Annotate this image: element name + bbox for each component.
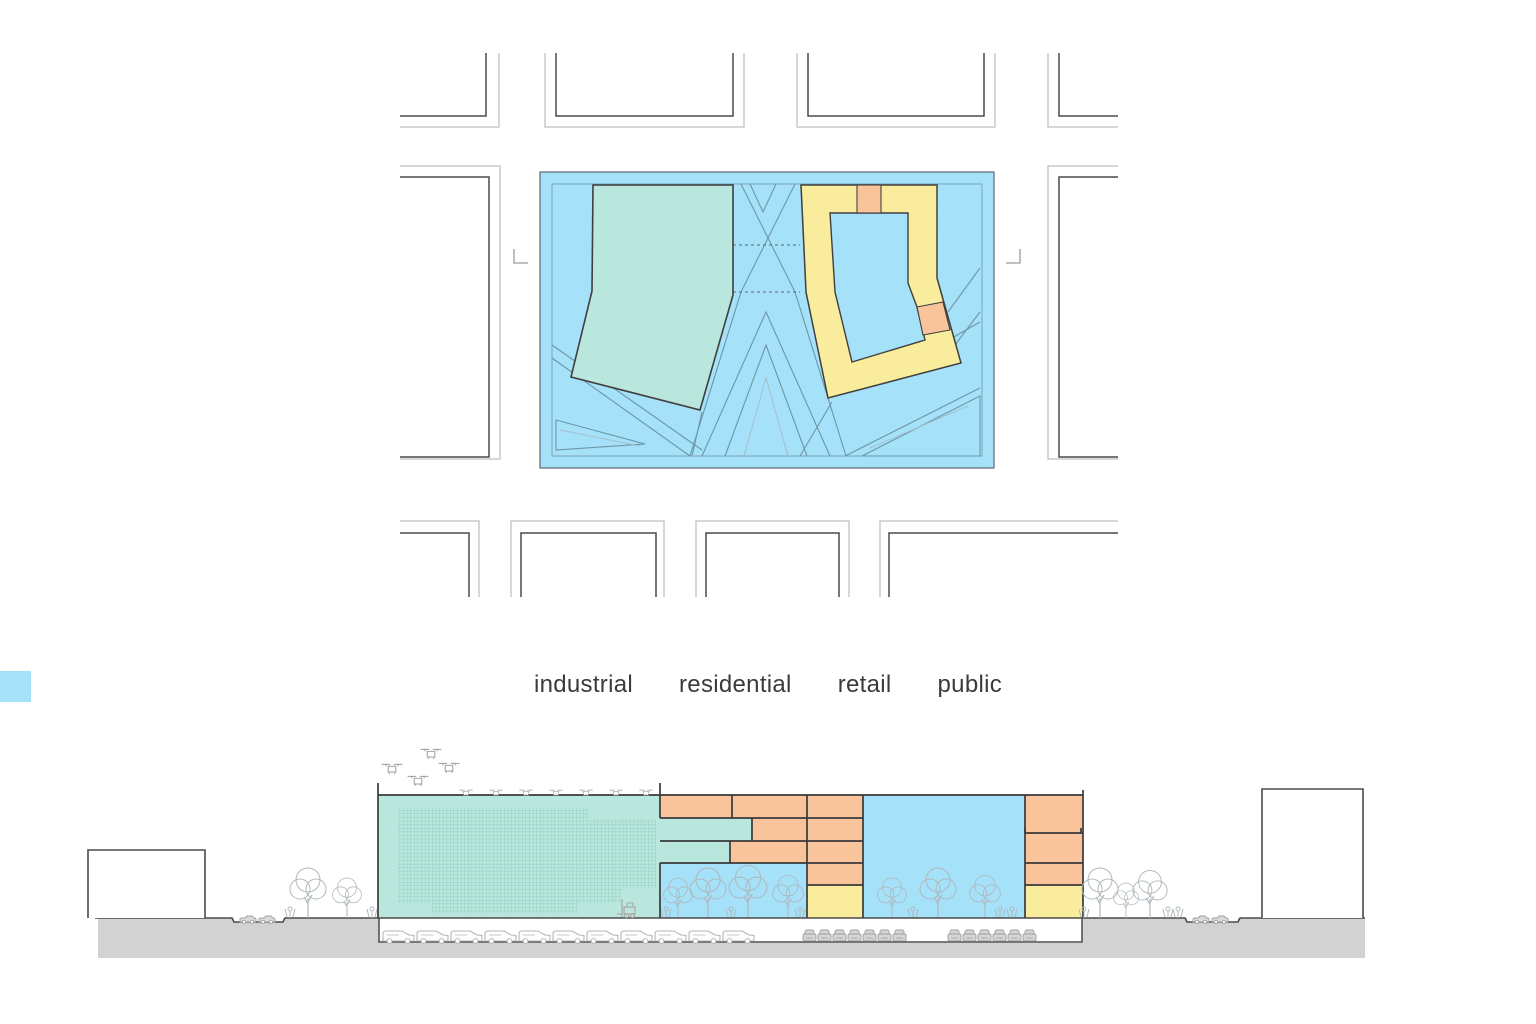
sprout-icon [285, 907, 295, 918]
industrial-finger-1 [660, 818, 752, 841]
car-icon [1008, 930, 1021, 941]
car-icon [948, 930, 961, 941]
drone-icon [382, 764, 403, 774]
retail-unit-left [807, 885, 863, 918]
sprout-icon [367, 907, 377, 918]
car-icon [803, 930, 816, 941]
car-icon [1023, 930, 1036, 941]
legend-item-residential: residential [679, 671, 792, 699]
residential-tower-top [1025, 795, 1083, 833]
legend-item-public: public [938, 671, 1003, 699]
diagram-svg [0, 0, 1536, 1024]
section-drawing [88, 749, 1365, 958]
industrial-building-plan [571, 185, 733, 410]
tree-icon [1113, 883, 1138, 918]
car-icon [863, 930, 876, 941]
urban-design-diagram: industrial residential retail public [0, 0, 1536, 1024]
legend-label-retail: retail [838, 671, 892, 699]
industrial-rack-grid [398, 808, 656, 914]
legend-item-retail: retail [838, 671, 892, 699]
legend: industrial residential retail public [0, 671, 1536, 699]
public-ground-floor [660, 863, 807, 918]
legend-label-industrial: industrial [534, 671, 633, 699]
car-icon [833, 930, 846, 941]
residential-tower-mid [1025, 833, 1083, 863]
legend-label-residential: residential [679, 671, 792, 699]
car-icon [993, 930, 1006, 941]
residential-bar-3 [730, 841, 863, 863]
industrial-finger-2 [660, 841, 730, 863]
retail-unit-right [1025, 885, 1083, 918]
residential-tower-low [1025, 863, 1083, 885]
car-icon [848, 930, 861, 941]
drone-icon [421, 749, 442, 759]
sprout-icon [1173, 907, 1183, 918]
neighbour-building-left [88, 850, 205, 918]
tree-icon [333, 878, 362, 918]
car-icon [818, 930, 831, 941]
residential-block-plan-top [857, 185, 881, 213]
delivery-drones [382, 749, 653, 796]
residential-bar-1 [660, 795, 863, 818]
legend-label-public: public [938, 671, 1003, 699]
legend-item-industrial: industrial [534, 671, 633, 699]
neighbour-building-right [1262, 789, 1363, 918]
car-icon [978, 930, 991, 941]
car-icon [893, 930, 906, 941]
sprout-icon [1163, 907, 1173, 918]
car-icon [878, 930, 891, 941]
drone-icon [408, 776, 429, 786]
public-swatch-icon [0, 671, 31, 702]
tree-icon [290, 868, 326, 918]
underground-vans [383, 931, 754, 943]
drone-icon [439, 763, 460, 773]
tree-icon [1082, 868, 1118, 918]
site-plan [385, 0, 1178, 691]
residential-bar-4 [807, 863, 863, 885]
public-atrium-block [863, 795, 1025, 918]
car-icon [963, 930, 976, 941]
